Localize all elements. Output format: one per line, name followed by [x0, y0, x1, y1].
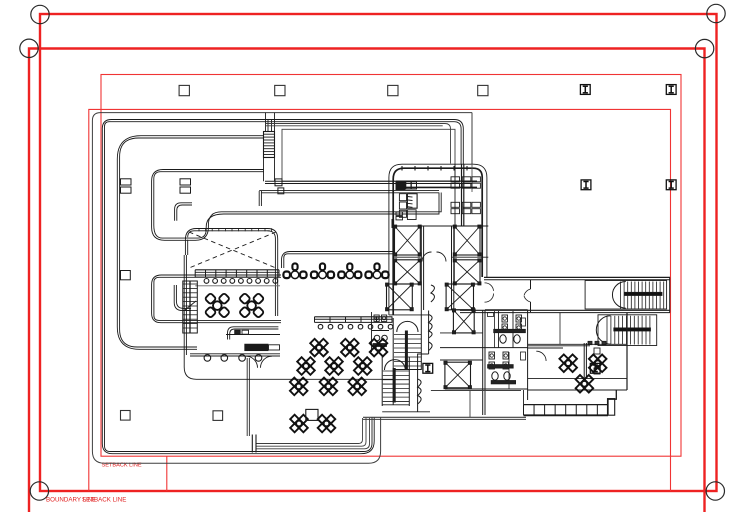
svg-text:SETBACK LINE: SETBACK LINE — [82, 497, 126, 504]
